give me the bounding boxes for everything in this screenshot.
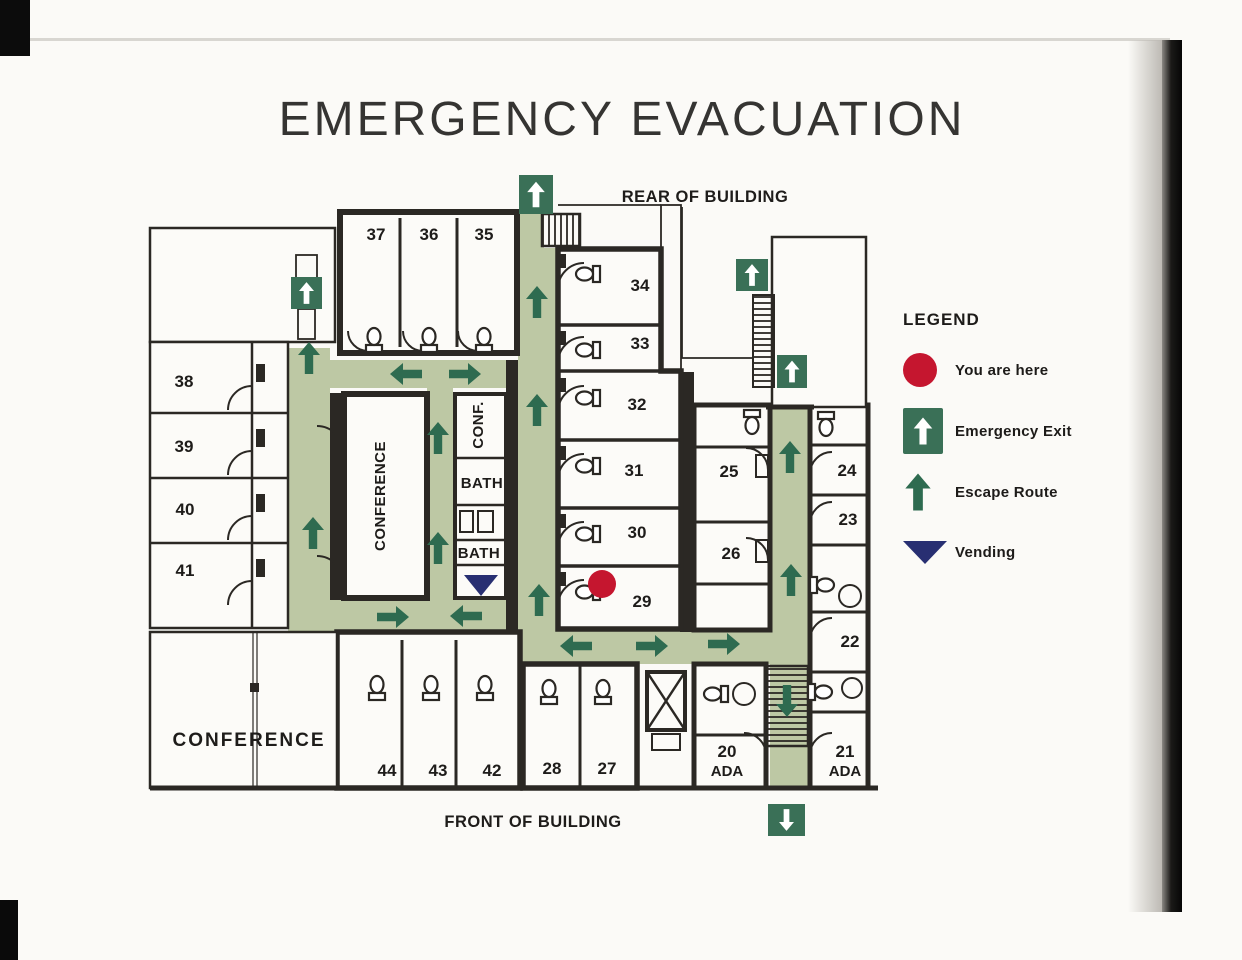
emergency-exit-sign — [291, 277, 322, 309]
emergency-exit-sign-icon — [903, 408, 943, 454]
legend: LEGEND You are here Emergency Exit Escap… — [903, 310, 1113, 590]
evacuation-sign-photo: EMERGENCY EVACUATION — [0, 0, 1242, 960]
bath-upper-label: BATH — [461, 475, 504, 492]
conference-center-label: CONFERENCE — [372, 441, 389, 551]
room-label-22: 22 — [841, 632, 860, 651]
room-label-38: 38 — [175, 372, 194, 391]
room-label-31: 31 — [625, 461, 644, 480]
rooms-25-26-block — [694, 405, 770, 630]
room-label-30: 30 — [628, 523, 647, 542]
room-label-28: 28 — [543, 759, 562, 778]
conf-small-label: CONF. — [470, 401, 487, 449]
room-label-25: 25 — [720, 462, 739, 481]
partition-post — [250, 683, 259, 692]
room-label-34: 34 — [631, 276, 650, 295]
room-label-39: 39 — [175, 437, 194, 456]
emergency-exit-sign — [768, 804, 805, 836]
corridor-center-top — [518, 212, 544, 250]
legend-item-emergency-exit: Emergency Exit — [903, 408, 1113, 454]
room-label-43: 43 — [429, 761, 448, 780]
room-label-29: 29 — [633, 592, 652, 611]
emergency-exit-sign — [519, 175, 553, 214]
room-label-40: 40 — [176, 500, 195, 519]
room-label-44: 44 — [378, 761, 397, 780]
room-label-24: 24 — [838, 461, 857, 480]
room-label-42: 42 — [483, 761, 502, 780]
room-label-27: 27 — [598, 759, 617, 778]
room-label-20: 20 — [718, 742, 737, 761]
room-label-41: 41 — [176, 561, 195, 580]
legend-item-vending: Vending — [903, 530, 1113, 574]
legend-label: Emergency Exit — [955, 423, 1072, 440]
front-of-building-label: FRONT OF BUILDING — [444, 813, 621, 831]
legend-heading: LEGEND — [903, 310, 1113, 330]
room-label-21: 21 — [836, 742, 855, 761]
conference-bottom-label: CONFERENCE — [172, 730, 325, 751]
room-label-23: 23 — [839, 510, 858, 529]
rear-of-building-label: REAR OF BUILDING — [622, 188, 789, 206]
you-are-here-dot-icon — [903, 353, 937, 387]
escape-route-arrow-icon — [903, 471, 933, 513]
room-label-32: 32 — [628, 395, 647, 414]
legend-label: You are here — [955, 362, 1048, 379]
bath-lower-label: BATH — [458, 545, 501, 562]
room-label-33: 33 — [631, 334, 650, 353]
elevator — [647, 672, 685, 750]
legend-label: Escape Route — [955, 484, 1058, 501]
stairwell-upper-right — [753, 295, 774, 387]
you-are-here-dot — [588, 570, 616, 598]
conference-room-bottom — [150, 632, 337, 788]
room-label-35: 35 — [475, 225, 494, 244]
rooms-38-41-block — [150, 342, 288, 628]
room-label-26: 26 — [722, 544, 741, 563]
room-label-37: 37 — [367, 225, 386, 244]
room-label-36: 36 — [420, 225, 439, 244]
legend-item-you-are-here: You are here — [903, 348, 1113, 392]
emergency-exit-sign — [736, 259, 768, 291]
stairwell-rear — [542, 214, 580, 246]
room-label-21-ada: ADA — [829, 763, 862, 780]
legend-item-escape-route: Escape Route — [903, 470, 1113, 514]
vending-triangle-icon — [903, 541, 947, 564]
legend-label: Vending — [955, 544, 1015, 561]
corridor-left-vertical — [288, 348, 330, 632]
emergency-exit-sign — [777, 355, 807, 388]
room-label-20-ada: ADA — [711, 763, 744, 780]
